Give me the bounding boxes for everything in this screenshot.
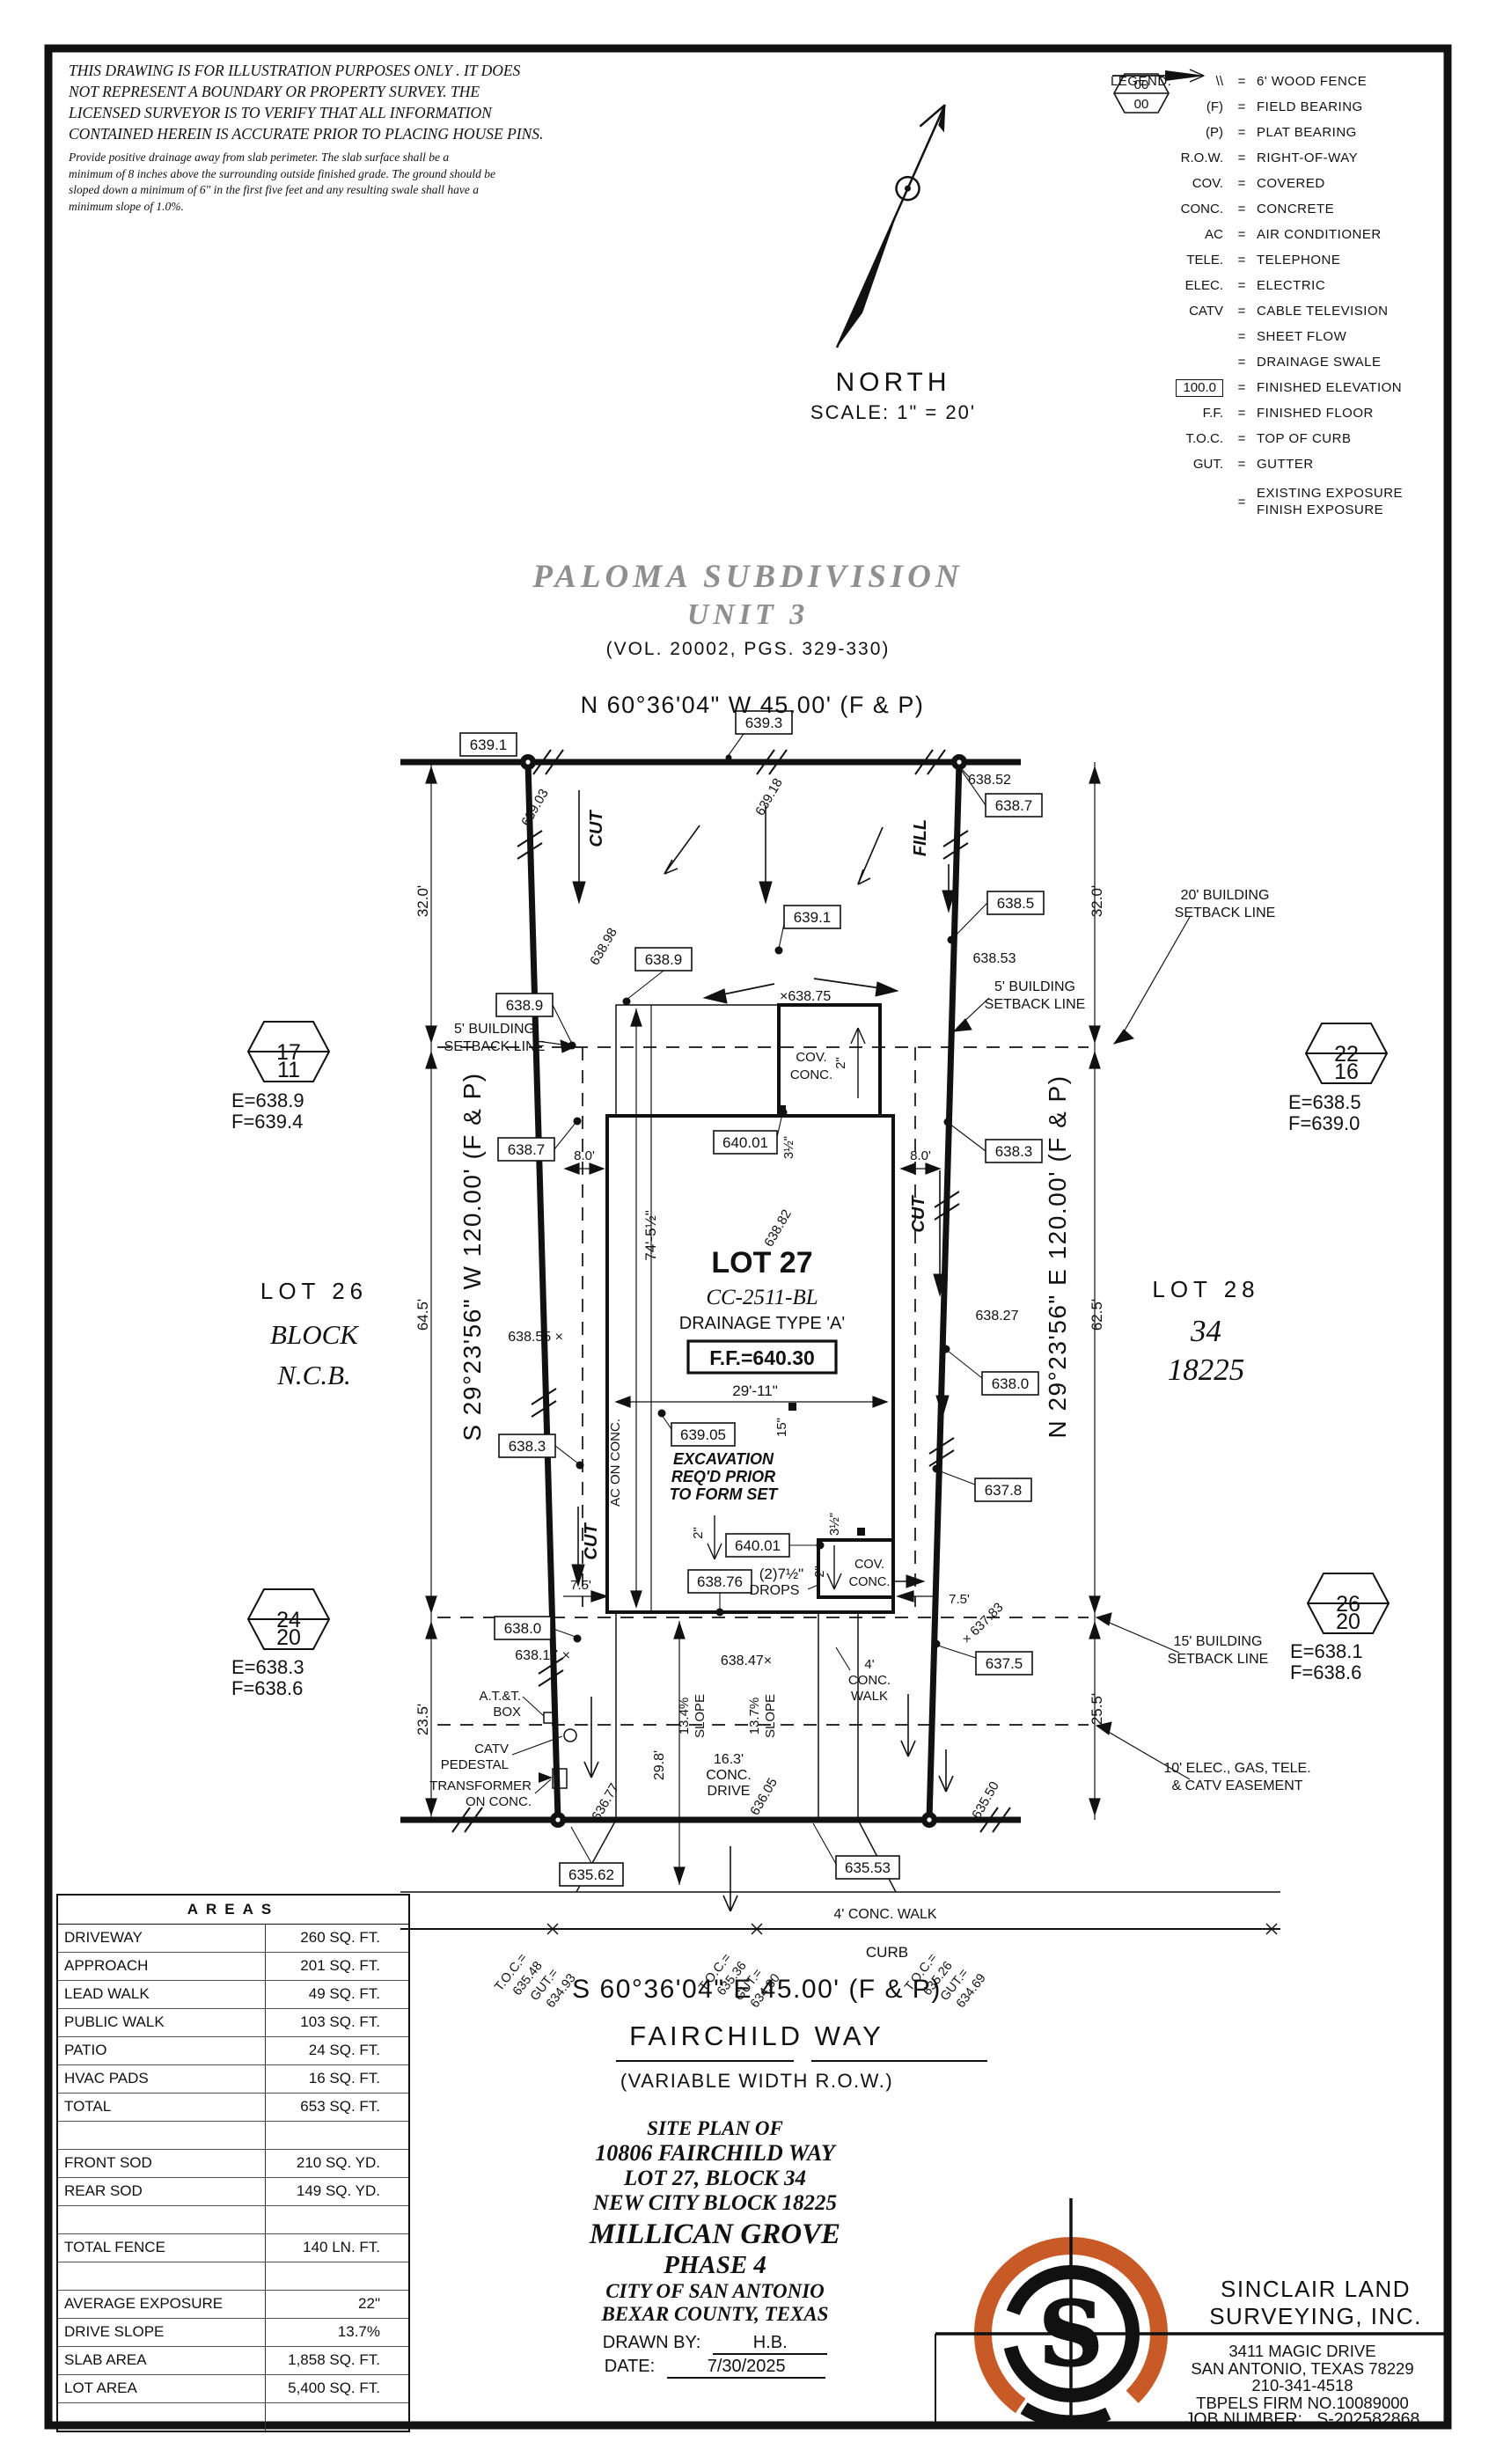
hex2-existing: E=638.5 [1288,1091,1361,1113]
area-label [58,2122,266,2149]
slope-1-word: SLOPE [693,1694,708,1738]
disclaimer-line: NOT REPRESENT A BOUNDARY OR PROPERTY SUR… [69,81,543,102]
area-label: LOT AREA [58,2375,266,2402]
surveyor-name-2: SURVEYING, INC. [1170,2303,1461,2330]
slope-2-pct: 13.7% [747,1698,762,1735]
dim-32-right: 32.0' [1089,885,1105,917]
hex1-existing: E=638.9 [231,1089,304,1111]
disclaimer-line: LICENSED SURVEYOR IS TO VERIFY THAT ALL … [69,102,543,123]
legend-eq: = [1227,431,1257,446]
elev-635-50: 635.50 [969,1779,1002,1822]
subdivision-title: PALOMA SUBDIVISION [449,558,1047,596]
street-row: (VARIABLE WIDTH R.O.W.) [453,2070,1060,2093]
subdivision-unit: UNIT 3 [449,598,1047,632]
legend-sym-tele: TELE. [1111,253,1227,268]
legend-eq: = [1227,99,1257,114]
elev-638-9-box-in: 638.9 [645,951,683,968]
area-value: 210 SQ. YD. [266,2150,385,2177]
title-line: 10806 FAIRCHILD WAY [497,2140,933,2167]
table-row [58,2122,408,2150]
area-value: 149 SQ. YD. [266,2178,385,2205]
table-row: APPROACH201 SQ. FT. [58,1953,408,1981]
title-line: MILLICAN GROVE [497,2218,933,2251]
elev-639-03: 639.03 [518,787,552,829]
drops-1: (2)7½" [759,1566,803,1582]
drops-2: DROPS [750,1583,800,1598]
elev-638-27: 638.27 [976,1309,1019,1324]
legend-sym-cov: COV. [1111,176,1227,191]
area-label: HVAC PADS [58,2065,266,2093]
hex2-bottom: 16 [1334,1060,1359,1084]
cc-2511-bl: CC-2511-BL [706,1286,818,1309]
elev-638-52: 638.52 [968,773,1011,788]
area-value: 49 SQ. FT. [266,1981,385,2008]
legend-label: PLAT BEARING [1257,125,1452,140]
area-label [58,2403,266,2431]
area-value: 1,858 SQ. FT. [266,2347,385,2374]
elev-638-47: 638.47× [721,1654,772,1668]
elev-639-1-box-in: 639.1 [794,909,832,926]
elev-639-05-box: 639.05 [680,1426,726,1443]
block-label: BLOCK [231,1319,398,1351]
table-row [58,2403,408,2431]
table-row: AVERAGE EXPOSURE22" [58,2291,408,2319]
drawn-by-label: DRAWN BY: [603,2333,701,2355]
dim-23-5: 23.5' [414,1704,431,1735]
excavation-2: REQ'D PRIOR [671,1468,775,1485]
dim-7-5-left: 7.5' [570,1578,591,1593]
area-value: 201 SQ. FT. [266,1953,385,1980]
table-row: LEAD WALK49 SQ. FT. [58,1981,408,2009]
elev-636-05: 636.05 [747,1776,781,1818]
legend-sym-plat: (P) [1111,125,1227,140]
disclaimer: THIS DRAWING IS FOR ILLUSTRATION PURPOSE… [69,60,543,144]
setback-15-2: SETBACK LINE [1168,1652,1269,1667]
area-label: TOTAL FENCE [58,2234,266,2262]
areas-table-title: AREAS [58,1896,408,1925]
legend-label: CABLE TELEVISION [1257,304,1452,319]
area-label: AVERAGE EXPOSURE [58,2291,266,2318]
legend-sym-row: R.O.W. [1111,150,1227,165]
table-row: TOTAL653 SQ. FT. [58,2094,408,2122]
ncb-18225-label: 18225 [1125,1353,1287,1388]
title-line: CITY OF SAN ANTONIO [497,2280,933,2303]
drainage-note-line: Provide positive drainage away from slab… [69,150,495,166]
north-arrow-icon [824,99,955,353]
elev-638-82: 638.82 [761,1207,795,1250]
legend-sym-elec: ELEC. [1111,278,1227,293]
table-row: PUBLIC WALK103 SQ. FT. [58,2009,408,2037]
hex1-finish: F=639.4 [231,1111,303,1133]
dim-7-5-right: 7.5' [949,1592,970,1607]
dim-29-8: 29.8' [652,1750,667,1780]
legend-eq: = [1227,495,1257,510]
elev-638-76-box: 638.76 [697,1573,743,1590]
dim-32-left: 32.0' [414,885,431,917]
elev-638-9-box-l: 638.9 [506,997,544,1014]
dim-8-left: 8.0' [574,1148,595,1163]
dim-8-right: 8.0' [910,1148,931,1163]
elev-638-5-box: 638.5 [997,895,1035,912]
cov-bottom-1: COV. [854,1558,884,1572]
legend-hex-top: 00 [1134,77,1149,92]
legend-sym-conc: CONC. [1111,202,1227,216]
legend-eq: = [1227,457,1257,472]
north-label: NORTH [774,368,1012,398]
dim-15in: 15" [774,1418,789,1437]
legend-eq: = [1227,176,1257,191]
legend-label: FINISH EXPOSURE [1257,502,1452,518]
legend-label: 6' WOOD FENCE [1257,74,1452,89]
elev-635-53-box: 635.53 [845,1859,891,1876]
area-value: 653 SQ. FT. [266,2094,385,2121]
legend-eq: = [1227,304,1257,319]
disclaimer-line: THIS DRAWING IS FOR ILLUSTRATION PURPOSE… [69,60,543,81]
drive-label-1: 16.3' [714,1752,744,1767]
setback-20-2: SETBACK LINE [1175,906,1276,920]
hex4-bottom: 20 [1336,1610,1360,1634]
hex4-existing: E=638.1 [1290,1640,1363,1662]
setback-20-1: 20' BUILDING [1181,888,1270,903]
job-number-value: S-202582868 [1316,2409,1419,2429]
hex4-finish: F=638.6 [1290,1661,1361,1683]
hex3-existing: E=638.3 [231,1656,304,1678]
title-line: BEXAR COUNTY, TEXAS [497,2303,933,2326]
excavation-3: TO FORM SET [670,1485,780,1503]
title-line: NEW CITY BLOCK 18225 [497,2191,933,2216]
disclaimer-line: CONTAINED HEREIN IS ACCURATE PRIOR TO PL… [69,123,543,144]
legend-label: TELEPHONE [1257,253,1452,268]
walk-label-2: CONC. [848,1673,891,1688]
legend-label: FINISHED ELEVATION [1257,380,1452,395]
elev-638-53: 638.53 [973,951,1016,966]
job-number-label: JOB NUMBER: [1185,2409,1302,2429]
hex1-bottom: 11 [277,1058,300,1082]
drainage-type: DRAINAGE TYPE 'A' [679,1314,845,1333]
area-label: REAR SOD [58,2178,266,2205]
elev-638-7-box-r: 638.7 [995,797,1033,814]
elev-638-0-box-l: 638.0 [504,1620,542,1637]
area-label: PATIO [58,2037,266,2064]
ncb-label: N.C.B. [231,1360,398,1391]
elev-638-7-box-l: 638.7 [508,1141,546,1158]
surveyor-name-1: SINCLAIR LAND [1170,2276,1461,2303]
legend-label: GUTTER [1257,457,1452,472]
legend-label: CONCRETE [1257,202,1452,216]
easement-2: & CATV EASEMENT [1171,1778,1302,1793]
fill-label: FILL [911,819,930,856]
legend-eq: = [1227,125,1257,140]
dim-25-5: 25.5' [1089,1693,1105,1725]
att-label-1: A.T.&T. [479,1689,521,1704]
hex2-finish: F=639.0 [1288,1112,1360,1134]
slope-1-pct: 13.4% [677,1698,692,1735]
legend-label: ELECTRIC [1257,278,1452,293]
area-label: PUBLIC WALK [58,2009,266,2036]
table-row: REAR SOD149 SQ. YD. [58,2178,408,2206]
area-label: APPROACH [58,1953,266,1980]
area-value: 5,400 SQ. FT. [266,2375,385,2402]
title-block: SITE PLAN OF 10806 FAIRCHILD WAY LOT 27,… [497,2117,933,2379]
area-value: 260 SQ. FT. [266,1925,385,1952]
cut-label-top: CUT [587,810,606,847]
elev-637-5-box: 637.5 [986,1655,1023,1672]
walk-label-1: 4' [864,1657,874,1672]
area-label: DRIVE SLOPE [58,2319,266,2346]
area-value [266,2206,385,2233]
drainage-note: Provide positive drainage away from slab… [69,150,495,215]
table-row: TOTAL FENCE140 LN. FT. [58,2234,408,2262]
legend-label: COVERED [1257,176,1452,191]
legend-label: DRAINAGE SWALE [1257,355,1452,370]
elev-637-83: × 637.83 [959,1600,1007,1647]
title-line: LOT 27, BLOCK 34 [497,2167,933,2191]
area-label: LEAD WALK [58,1981,266,2008]
area-value: 140 LN. FT. [266,2234,385,2262]
table-row [58,2206,408,2234]
area-value [266,2403,385,2431]
areas-table: AREAS DRIVEWAY260 SQ. FT. APPROACH201 SQ… [56,1894,410,2432]
curb-label: CURB [866,1944,908,1961]
legend-label-exposure: EXISTING EXPOSURE FINISH EXPOSURE [1257,485,1452,518]
legend-eq: = [1227,278,1257,293]
cov-bottom-2: CONC. [849,1575,891,1589]
surveyor-addr-1: 3411 MAGIC DRIVE [1146,2343,1459,2360]
legend-eq: = [1227,406,1257,421]
dim-3half-bottom: 3½" [827,1513,842,1536]
elev-638-75: ×638.75 [780,989,831,1004]
area-label [58,2262,266,2290]
block-34-label: 34 [1125,1314,1287,1349]
drive-label-3: DRIVE [708,1784,751,1799]
bearing-left: S 29°23'56" W 120.00' (F & P) [458,1010,487,1503]
slope-2-word: SLOPE [763,1694,778,1738]
legend-label: RIGHT-OF-WAY [1257,150,1452,165]
cut-label-mid: CUT [582,1522,601,1560]
cov-top-2: CONC. [790,1067,832,1082]
legend-label: AIR CONDITIONER [1257,227,1452,242]
cov-top-1: COV. [796,1050,826,1065]
elev-635-62-box: 635.62 [568,1866,614,1883]
hex3-finish: F=638.6 [231,1677,303,1699]
legend-label: FIELD BEARING [1257,99,1452,114]
elev-638-0-box-r: 638.0 [992,1375,1030,1392]
easement-1: 10' ELEC., GAS, TELE. [1163,1761,1310,1776]
legend-eq: = [1227,253,1257,268]
finished-floor-box: F.F.=640.30 [709,1346,815,1369]
street-name: FAIRCHILD WAY [453,2020,1060,2052]
legend-label: TOP OF CURB [1257,431,1452,446]
elev-638-17: 638.17 × [515,1648,570,1663]
area-value: 22" [266,2291,385,2318]
legend-sym-ff: F.F. [1111,406,1227,421]
surveyor-addr-2: SAN ANTONIO, TEXAS 78229 [1146,2360,1459,2378]
elev-638-98: 638.98 [587,926,620,968]
setback-5-right-1: 5' BUILDING [994,979,1075,994]
table-row [58,2262,408,2291]
legend-label: SHEET FLOW [1257,329,1452,344]
plat-volume: (VOL. 20002, PGS. 329-330) [449,639,1047,660]
elev-638-55: 638.55 × [508,1330,563,1345]
title-line: SITE PLAN OF [497,2117,933,2140]
legend-eq: = [1227,355,1257,370]
table-row: PATIO24 SQ. FT. [58,2037,408,2065]
area-value: 16 SQ. FT. [266,2065,385,2093]
legend-eq: = [1227,202,1257,216]
dim-64-5: 64.5' [414,1299,431,1331]
dim-62-5: 62.5' [1089,1299,1105,1331]
lot-26-label: LOT 26 [231,1278,398,1305]
transformer-label-1: TRANSFORMER [429,1778,532,1793]
ac-on-conc: AC ON CONC. [608,1419,623,1507]
legend-eq: = [1227,227,1257,242]
legend-eq: = [1227,380,1257,395]
lot-28-label: LOT 28 [1125,1276,1287,1303]
elev-639-18: 639.18 [752,776,786,818]
cut-label-right: CUT [909,1195,928,1233]
drainage-note-line: minimum of 8 inches above the surroundin… [69,166,495,183]
legend-sym-catv: CATV [1111,304,1227,319]
catv-label-1: CATV [474,1742,509,1756]
adjacent-lot-28: LOT 28 34 18225 [1125,1276,1287,1388]
elev-640-01-box-b: 640.01 [735,1537,781,1554]
legend-label: EXISTING EXPOSURE [1257,485,1452,502]
site-plan-sheet: S 639.1 639.3 638.52 638.7 639.03 639.18… [0,0,1496,2464]
legend-sym-ac: AC [1111,227,1227,242]
bearing-top: N 60°36'04" W 45.00' (F & P) [449,692,1056,719]
legend-label: FINISHED FLOOR [1257,406,1452,421]
area-value: 13.7% [266,2319,385,2346]
lot-27-label: LOT 27 [711,1246,812,1280]
table-row: DRIVE SLOPE13.7% [58,2319,408,2347]
dim-2in-bottom: 2" [813,1566,827,1577]
area-label: DRIVEWAY [58,1925,266,1952]
setback-15-1: 15' BUILDING [1174,1634,1263,1649]
hex3-bottom: 20 [276,1625,301,1650]
dim-3half-top: 3½" [781,1136,796,1159]
surveyor-phone: 210-341-4518 [1146,2377,1459,2394]
legend-hex-bottom: 00 [1134,97,1149,112]
legend-eq: = [1227,150,1257,165]
bearing-right: N 29°23'56" E 120.00' (F & P) [1044,1010,1072,1503]
legend-eq: = [1227,329,1257,344]
finished-elevation-symbol: 100.0 [1111,380,1227,395]
title-line: PHASE 4 [497,2251,933,2280]
elev-638-3-box-l: 638.3 [509,1438,546,1455]
elev-637-8-box: 637.8 [985,1482,1023,1499]
walk-label-3: WALK [851,1689,888,1704]
date-label: DATE: [605,2357,655,2379]
area-value: 24 SQ. FT. [266,2037,385,2064]
legend-eq: = [1227,74,1257,89]
dim-2in-mid: 2" [691,1527,706,1539]
table-row: DRIVEWAY260 SQ. FT. [58,1925,408,1953]
date-value: 7/30/2025 [667,2357,825,2379]
table-row: SLAB AREA1,858 SQ. FT. [58,2347,408,2375]
table-row: LOT AREA5,400 SQ. FT. [58,2375,408,2403]
surveyor-address: 3411 MAGIC DRIVE SAN ANTONIO, TEXAS 7822… [1146,2343,1459,2411]
catv-pedestal-symbol [564,1729,576,1742]
drainage-note-line: sloped down a minimum of 6" in the first… [69,182,495,199]
att-label-2: BOX [493,1705,521,1720]
area-label: SLAB AREA [58,2347,266,2374]
table-row: HVAC PADS16 SQ. FT. [58,2065,408,2094]
legend-sym-elev: 100.0 [1176,379,1223,397]
drawn-by-value: H.B. [713,2333,827,2355]
scale-label: SCALE: 1" = 20' [757,401,1030,424]
drainage-note-line: minimum slope of 1.0%. [69,199,495,216]
legend: LEGEND: \\=6' WOOD FENCE (F)=FIELD BEARI… [1111,69,1452,526]
area-label: TOTAL [58,2094,266,2121]
dim-2in-top: 2" [833,1057,848,1069]
bearing-bottom: S 60°36'04" E 45.00' (F & P) [453,1975,1060,2005]
dim-74-5half: 74'-5½" [642,1210,659,1260]
legend-sym-gut: GUT. [1111,457,1227,472]
area-label: FRONT SOD [58,2150,266,2177]
elev-640-01-box-t: 640.01 [722,1134,768,1151]
area-value: 103 SQ. FT. [266,2009,385,2036]
area-label [58,2206,266,2233]
legend-sym-toc: T.O.C. [1111,431,1227,446]
transformer-label-2: ON CONC. [466,1794,532,1809]
street-walk-label: 4' CONC. WALK [833,1907,936,1922]
drive-label-2: CONC. [706,1768,752,1783]
elev-639-1-box: 639.1 [470,737,508,753]
dim-29-11: 29'-11" [732,1382,778,1399]
elev-638-3-box-r: 638.3 [995,1143,1033,1160]
adjacent-lot-26: LOT 26 BLOCK N.C.B. [231,1278,398,1391]
surveyor-name: SINCLAIR LAND SURVEYING, INC. [1170,2276,1461,2330]
table-row: FRONT SOD210 SQ. YD. [58,2150,408,2178]
job-number: JOB NUMBER: S-202582868 [1140,2409,1465,2430]
excavation-1: EXCAVATION [673,1450,774,1468]
area-value [266,2262,385,2290]
catv-label-2: PEDESTAL [441,1757,509,1772]
area-value [266,2122,385,2149]
